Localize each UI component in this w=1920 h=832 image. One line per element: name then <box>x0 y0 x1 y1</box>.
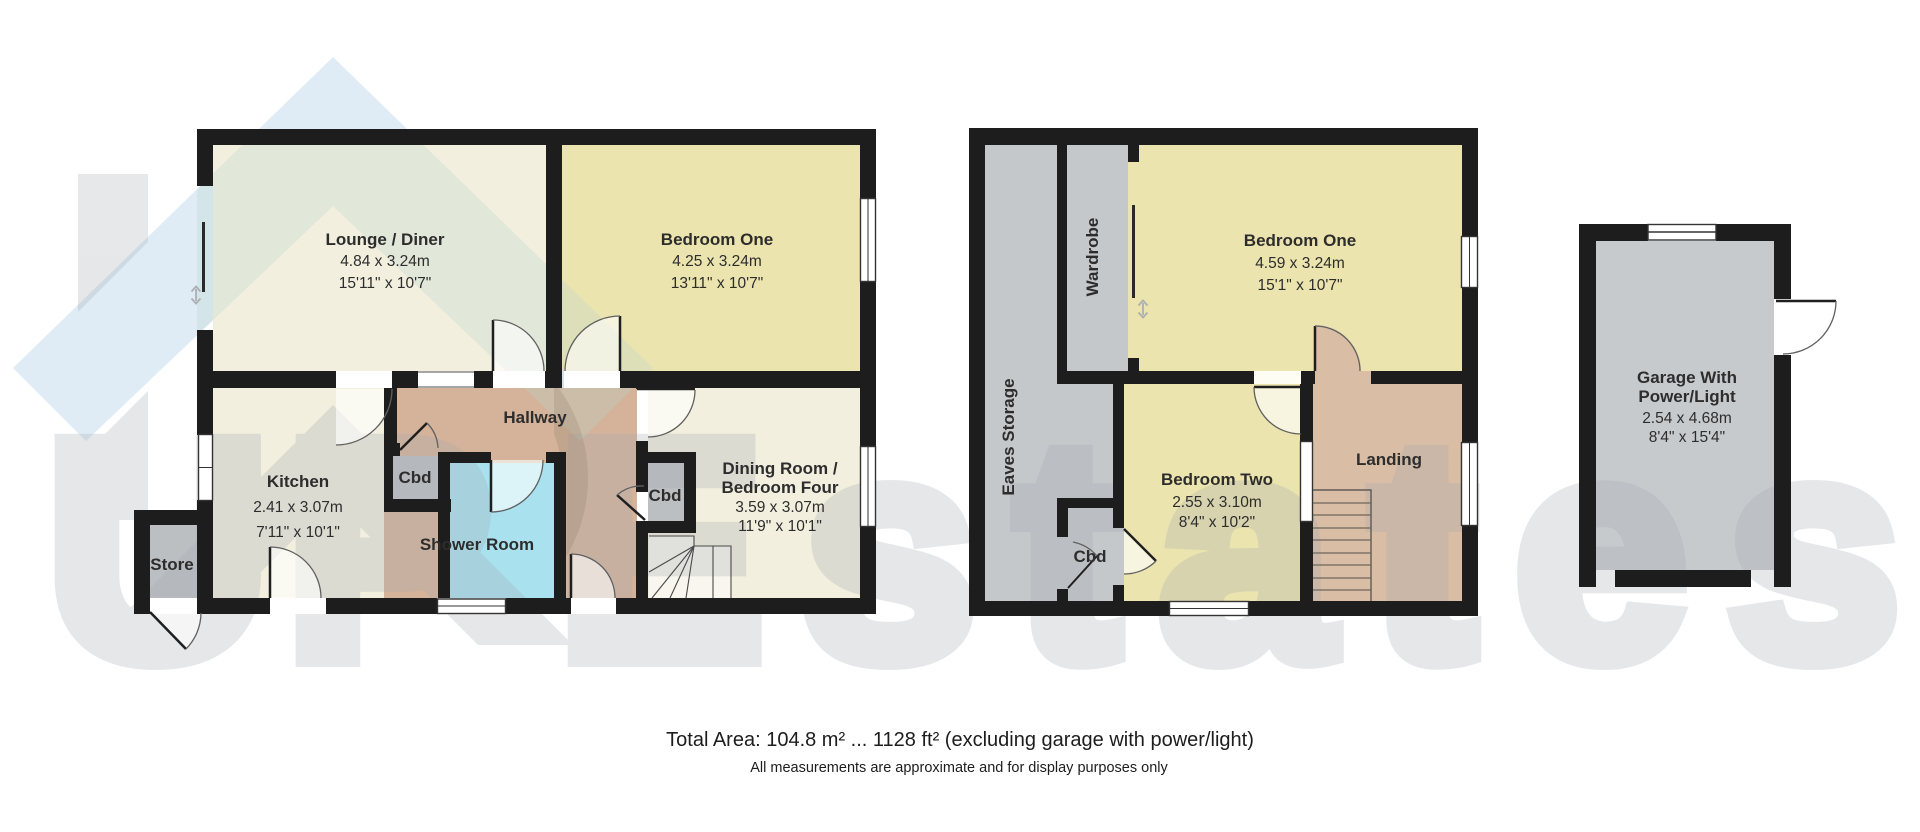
svg-text:Total Area: 104.8 m² ... 1128: Total Area: 104.8 m² ... 1128 ft² (exclu… <box>666 729 1254 751</box>
svg-text:15'1" x 10'7": 15'1" x 10'7" <box>1257 277 1342 294</box>
svg-text:4.25 x 3.24m: 4.25 x 3.24m <box>672 253 762 270</box>
svg-text:Shower Room: Shower Room <box>420 535 534 554</box>
svg-text:Cbd: Cbd <box>648 486 681 505</box>
svg-text:3.59 x 3.07m: 3.59 x 3.07m <box>735 499 825 516</box>
svg-text:15'11" x 10'7": 15'11" x 10'7" <box>339 275 431 292</box>
svg-text:2.54 x 4.68m: 2.54 x 4.68m <box>1642 410 1732 427</box>
svg-text:8'4" x 10'2": 8'4" x 10'2" <box>1179 514 1255 531</box>
svg-text:Garage With: Garage With <box>1637 368 1737 387</box>
svg-text:Kitchen: Kitchen <box>267 472 329 491</box>
svg-text:Bedroom Four: Bedroom Four <box>721 478 838 497</box>
svg-text:All measurements are approxima: All measurements are approximate and for… <box>750 760 1168 776</box>
svg-text:Lounge / Diner: Lounge / Diner <box>326 230 445 249</box>
svg-text:Dining Room /: Dining Room / <box>722 459 837 478</box>
svg-text:Eaves Storage: Eaves Storage <box>999 378 1018 495</box>
svg-text:11'9" x 10'1": 11'9" x 10'1" <box>738 518 822 535</box>
svg-text:Bedroom Two: Bedroom Two <box>1161 470 1273 489</box>
svg-text:Bedroom One: Bedroom One <box>661 230 773 249</box>
svg-text:13'11" x 10'7": 13'11" x 10'7" <box>671 275 763 292</box>
svg-text:Landing: Landing <box>1356 450 1422 469</box>
svg-text:Cbd: Cbd <box>1073 547 1106 566</box>
svg-text:2.41 x 3.07m: 2.41 x 3.07m <box>253 499 343 516</box>
svg-text:Wardrobe: Wardrobe <box>1083 218 1102 297</box>
svg-text:4.84 x 3.24m: 4.84 x 3.24m <box>340 253 430 270</box>
svg-text:8'4" x 15'4": 8'4" x 15'4" <box>1649 429 1725 446</box>
svg-text:2.55 x 3.10m: 2.55 x 3.10m <box>1172 494 1262 511</box>
svg-text:Hallway: Hallway <box>503 408 567 427</box>
svg-text:Power/Light: Power/Light <box>1638 387 1736 406</box>
svg-text:7'11" x 10'1": 7'11" x 10'1" <box>256 524 340 541</box>
svg-text:Store: Store <box>150 555 193 574</box>
svg-text:4.59 x 3.24m: 4.59 x 3.24m <box>1255 255 1345 272</box>
svg-text:Bedroom One: Bedroom One <box>1244 231 1356 250</box>
svg-text:Cbd: Cbd <box>398 468 431 487</box>
